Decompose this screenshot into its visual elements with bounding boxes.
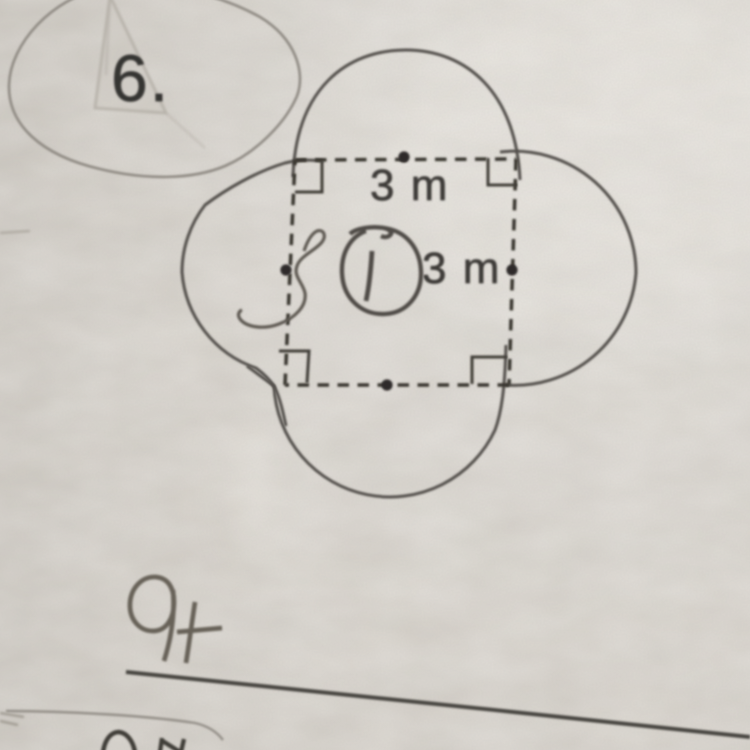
svg-text:3 m: 3 m — [422, 244, 501, 293]
svg-text:3 m: 3 m — [370, 161, 449, 210]
svg-text:6.: 6. — [111, 41, 170, 115]
